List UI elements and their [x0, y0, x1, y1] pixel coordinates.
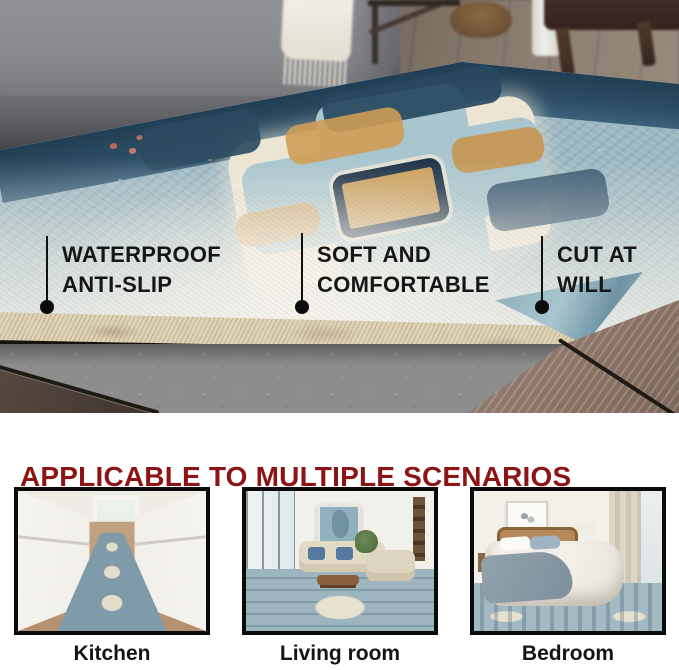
- blue-pillow: [308, 547, 325, 560]
- hero-photo: WATERPROOF ANTI-SLIP SOFT AND COMFORTABL…: [0, 0, 679, 413]
- scenario-photo-bedroom: [470, 487, 666, 635]
- callout-label: CUT AT: [557, 240, 637, 270]
- side-table: [368, 0, 460, 66]
- callout-dot: [40, 300, 54, 314]
- coffee-table: [317, 575, 358, 585]
- bedroom-window: [641, 491, 662, 592]
- caption-bedroom: Bedroom: [470, 642, 666, 666]
- beige-chaise: [366, 550, 415, 581]
- callout-label: COMFORTABLE: [317, 270, 490, 300]
- grey-blanket: [480, 550, 573, 604]
- product-infographic: WATERPROOF ANTI-SLIP SOFT AND COMFORTABL…: [0, 0, 679, 670]
- callout-line: [46, 236, 48, 302]
- shelf: [413, 497, 424, 561]
- basket: [450, 2, 512, 38]
- caption-living-room: Living room: [242, 642, 438, 666]
- callout-dot: [295, 300, 309, 314]
- lamp: [577, 523, 596, 536]
- pillow: [500, 536, 531, 551]
- blue-pillow: [336, 547, 353, 560]
- wood-bench: [544, 0, 679, 30]
- pillow: [530, 535, 561, 549]
- scenario-photo-kitchen: [14, 487, 210, 635]
- callout-label: WATERPROOF: [62, 240, 221, 270]
- callout-dot: [535, 300, 549, 314]
- throw-fringe: [283, 54, 348, 87]
- callout-label: WILL: [557, 270, 637, 300]
- throw-blanket: [280, 0, 353, 62]
- callout-line: [541, 236, 543, 302]
- callout-label: SOFT AND: [317, 240, 490, 270]
- caption-kitchen: Kitchen: [14, 642, 210, 666]
- plant: [355, 530, 378, 552]
- callout-label: ANTI-SLIP: [62, 270, 221, 300]
- scenario-photo-living-room: [242, 487, 438, 635]
- callout-line: [301, 233, 303, 302]
